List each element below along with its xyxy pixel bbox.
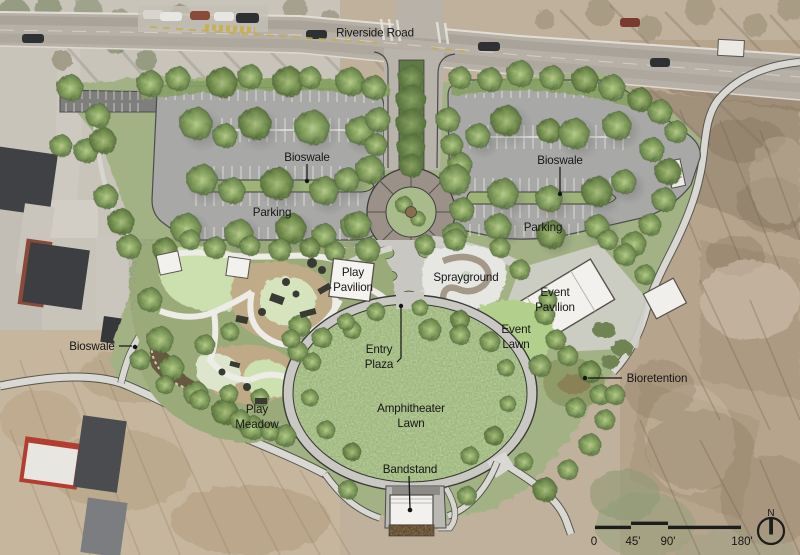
svg-text:Lawn: Lawn xyxy=(502,338,529,351)
svg-text:Bioretention: Bioretention xyxy=(627,372,688,385)
svg-text:Riverside Road: Riverside Road xyxy=(336,27,414,40)
svg-text:Meadow: Meadow xyxy=(235,418,279,431)
svg-text:Pavilion: Pavilion xyxy=(535,301,575,314)
svg-text:Play: Play xyxy=(246,403,268,416)
svg-text:Bioswale: Bioswale xyxy=(537,154,583,167)
svg-text:Parking: Parking xyxy=(253,206,292,219)
svg-text:45': 45' xyxy=(626,536,641,548)
svg-text:Amphitheater: Amphitheater xyxy=(377,402,445,415)
svg-text:Play: Play xyxy=(342,266,364,279)
svg-text:180': 180' xyxy=(731,536,752,548)
svg-text:Event: Event xyxy=(501,323,531,336)
svg-text:0: 0 xyxy=(591,536,597,548)
svg-text:90': 90' xyxy=(661,536,676,548)
svg-text:Plaza: Plaza xyxy=(365,358,394,371)
svg-text:Bioswale: Bioswale xyxy=(69,340,115,353)
svg-text:Bioswale: Bioswale xyxy=(284,151,330,164)
svg-text:Bandstand: Bandstand xyxy=(383,463,438,476)
svg-text:Lawn: Lawn xyxy=(397,417,424,430)
svg-text:Pavilion: Pavilion xyxy=(333,281,373,294)
svg-text:Parking: Parking xyxy=(524,221,563,234)
svg-text:N: N xyxy=(767,508,774,519)
svg-text:Sprayground: Sprayground xyxy=(433,271,498,284)
svg-text:Entry: Entry xyxy=(366,343,393,356)
svg-text:Event: Event xyxy=(540,286,570,299)
